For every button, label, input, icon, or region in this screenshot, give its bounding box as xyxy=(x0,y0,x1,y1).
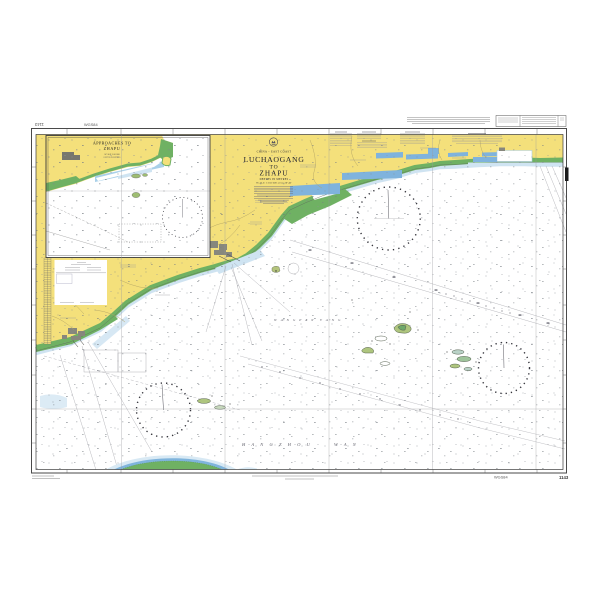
svg-text:DEPTHS IN METRES: DEPTHS IN METRES xyxy=(104,157,121,159)
svg-text:ZHAPU: ZHAPU xyxy=(260,169,289,177)
svg-text:CHINA – EAST COAST: CHINA – EAST COAST xyxy=(257,149,292,153)
svg-text:1143: 1143 xyxy=(34,122,44,127)
svg-text:W A N G P A N: W A N G P A N xyxy=(274,318,315,322)
svg-text:WGS84: WGS84 xyxy=(494,474,508,479)
svg-text:W A N: W A N xyxy=(334,442,358,447)
svg-text:H A N G Z H O U: H A N G Z H O U xyxy=(241,442,312,447)
svg-text:LUCHAOGANG: LUCHAOGANG xyxy=(243,155,304,164)
svg-text:SCALE 1:50 000: SCALE 1:50 000 xyxy=(104,153,120,156)
svg-text:1143: 1143 xyxy=(559,475,569,480)
svg-text:APPROACHES TO: APPROACHES TO xyxy=(93,141,131,146)
svg-text:SCALE 1:150 000 at lat 30°40': SCALE 1:150 000 at lat 30°40' xyxy=(256,182,292,185)
svg-text:ZHAPU: ZHAPU xyxy=(104,146,121,151)
svg-text:WGS84: WGS84 xyxy=(84,122,98,127)
svg-text:Y A N G: Y A N G xyxy=(320,318,342,322)
